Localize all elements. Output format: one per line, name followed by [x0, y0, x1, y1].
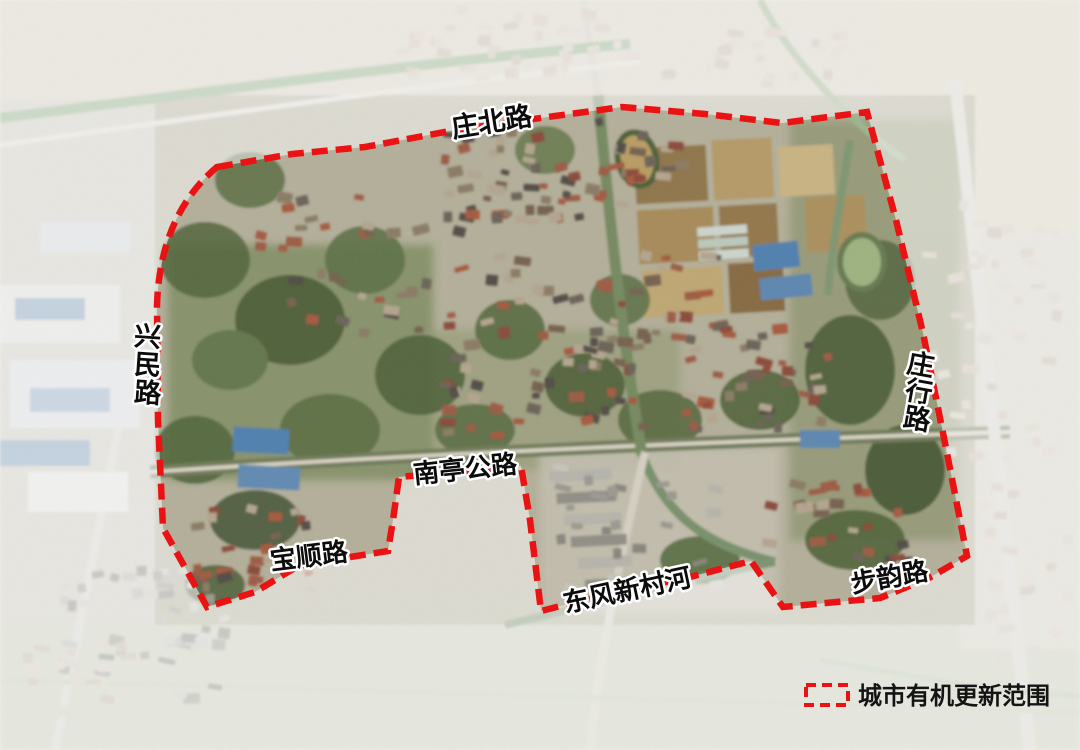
- map-screenshot: 庄北路 兴 民 路 庄 行 路 南亭公路 宝顺路 东风新村河 步韵路 城市有机更…: [0, 0, 1080, 750]
- satellite-map: 庄北路 兴 民 路 庄 行 路 南亭公路 宝顺路 东风新村河 步韵路 城市有机更…: [0, 0, 1080, 750]
- svg-text:路: 路: [133, 376, 163, 410]
- legend-boundary-label: 城市有机更新范围: [858, 682, 1050, 710]
